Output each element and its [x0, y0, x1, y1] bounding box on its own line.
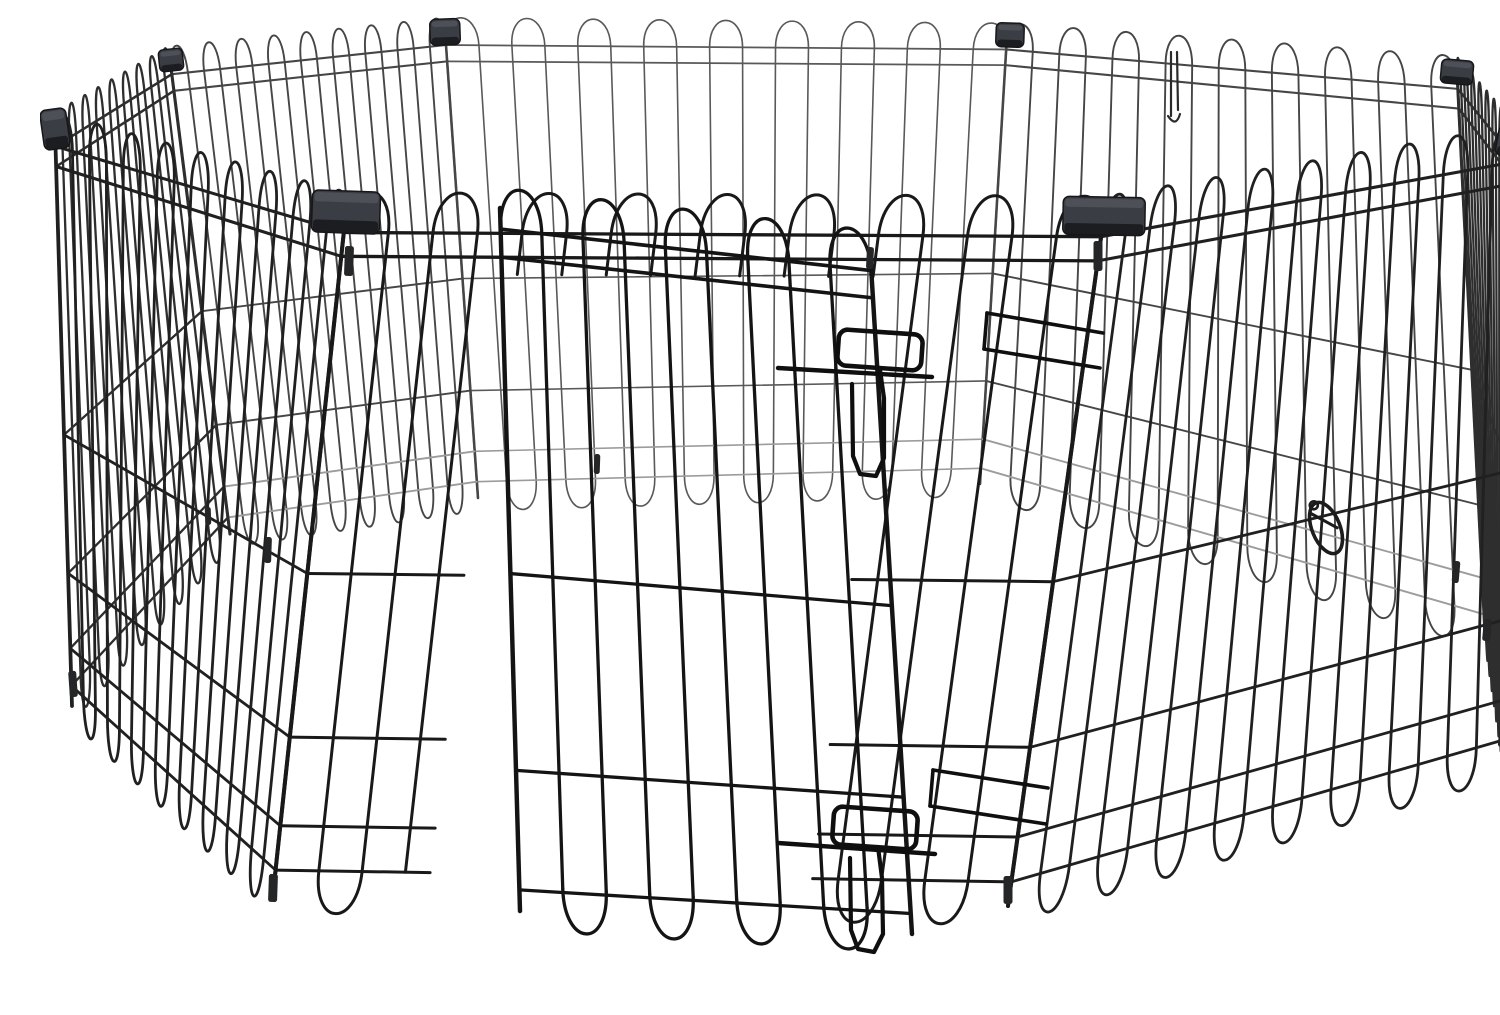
- corner-clip-back-left: [430, 18, 461, 45]
- corner-clip-back-right: [996, 23, 1025, 48]
- hinge-ferrule: [344, 246, 354, 276]
- latch-keeper-bottom: [930, 770, 1048, 824]
- corner-clip-left: [40, 107, 71, 150]
- hinge-ferrule: [68, 671, 78, 697]
- product-photo: [40, 16, 1500, 999]
- panel-left-back: [170, 19, 478, 544]
- panel-back: [445, 18, 1007, 510]
- hinge-ferrule: [1004, 876, 1013, 904]
- panel-right-back: [980, 24, 1485, 636]
- pet-playpen-illustration: [40, 16, 1500, 999]
- corner-clip-front-right: [1063, 196, 1146, 235]
- hinge-ferrule: [268, 874, 278, 902]
- hinge-ferrule: [205, 507, 212, 525]
- hinge-ferrule: [1094, 241, 1103, 271]
- corner-clip-left-back: [158, 48, 184, 72]
- hinge-pin: [1168, 52, 1180, 122]
- hinge-ferrule: [264, 537, 272, 563]
- panel-front-right: [1008, 127, 1500, 912]
- corner-clip-right-back: [1440, 59, 1474, 86]
- hinge-ferrule: [594, 454, 601, 474]
- hinge-ferrule: [866, 247, 874, 269]
- snap-hook: [1302, 495, 1349, 558]
- corner-clip-front-left: [311, 190, 380, 234]
